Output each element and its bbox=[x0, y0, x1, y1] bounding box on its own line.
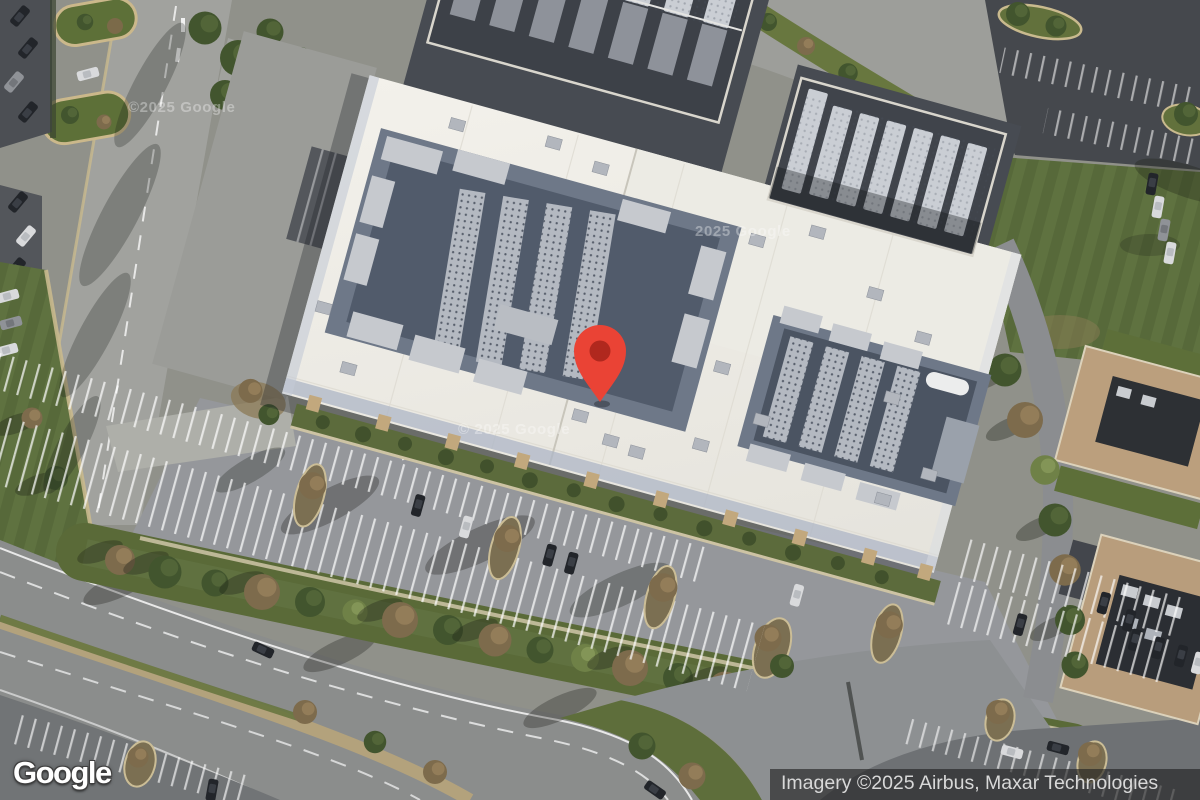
watermark-google: © 2025 Google bbox=[458, 421, 570, 438]
marker-shadow bbox=[594, 401, 610, 408]
imagery-attribution: Imagery ©2025 Airbus, Maxar Technologies bbox=[770, 769, 1200, 800]
map-canvas[interactable]: ©2025 Google 2025 Google © 2025 Google G… bbox=[0, 0, 1200, 800]
marker-pin-dot bbox=[590, 341, 611, 362]
google-logo[interactable]: Google bbox=[13, 755, 111, 791]
satellite-scene: ©2025 Google 2025 Google © 2025 Google bbox=[0, 0, 1200, 800]
watermark-google: ©2025 Google bbox=[128, 99, 235, 116]
watermark-google: 2025 Google bbox=[695, 223, 791, 240]
